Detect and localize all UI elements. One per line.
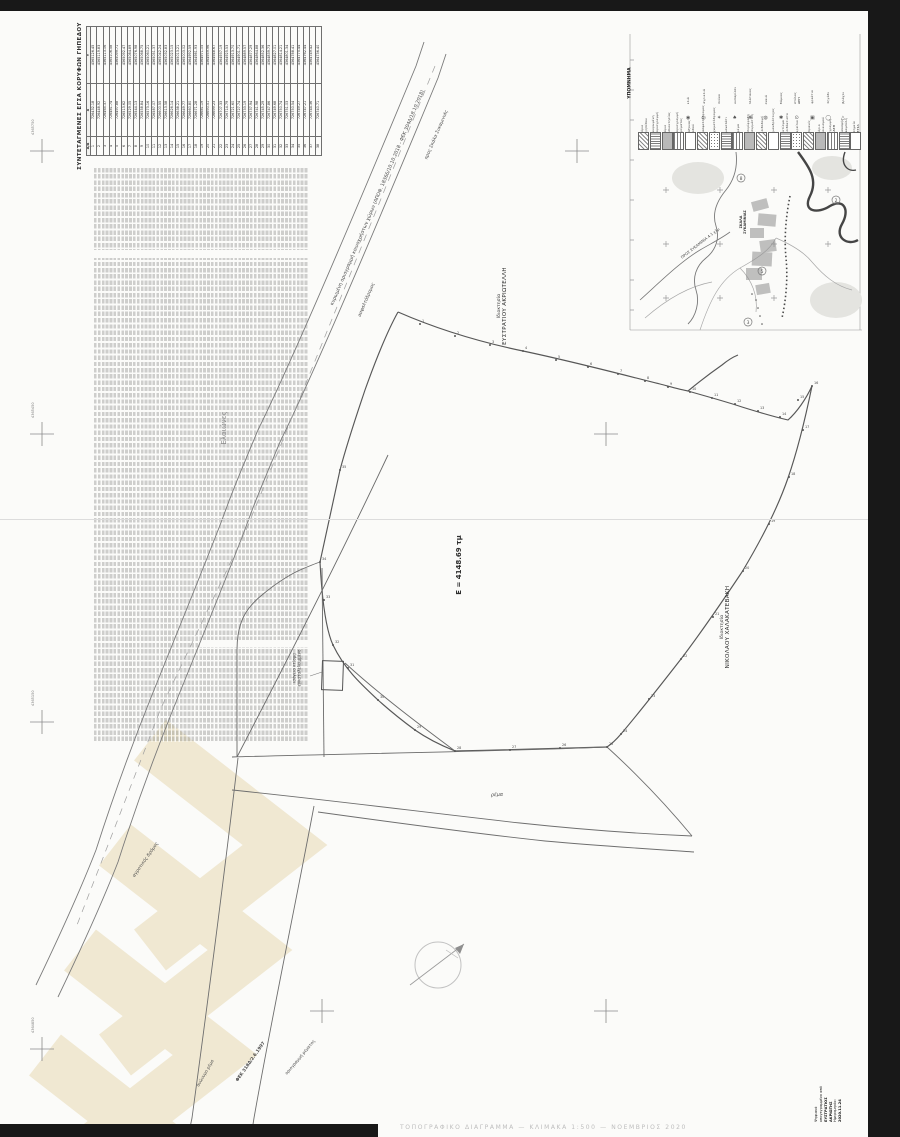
legend-swatch — [827, 132, 838, 150]
legend-box-item: γραμμή ΔΕΗ — [827, 132, 838, 150]
svg-text:11: 11 — [714, 393, 718, 397]
svg-text:8: 8 — [740, 176, 743, 182]
legend-swatch — [662, 132, 673, 150]
svg-text:22: 22 — [683, 654, 687, 658]
legend-swatch — [685, 132, 696, 150]
coord-row: 38726740.714364736.40 — [315, 27, 321, 156]
legend-box-item: ερείπιο — [791, 132, 802, 150]
legend-box-item: οριογραμμή ρέματος — [673, 132, 684, 150]
svg-text:33: 33 — [326, 595, 330, 599]
svg-text:17: 17 — [805, 425, 809, 429]
svg-text:2: 2 — [835, 198, 838, 204]
parcel-area-label: Ε = 4148.69 τμ — [455, 535, 463, 594]
svg-text:23: 23 — [651, 694, 655, 698]
legend-box-item: ισοϋψής καμπύλη — [839, 132, 850, 150]
map-legend: ΥΠΟΜΝΗΜΑ ◉ελιά◎αγριελιά✶πεύκο♠κυπαρίσσι❋… — [628, 28, 864, 152]
coordinates-table-title: ΣΥΝΤΕΤΑΓΜΕΝΕΣ ΕΓΣΑ ΚΟΡΥΦΩΝ ΓΗΠΕΔΟΥ — [77, 22, 83, 170]
svg-text:20: 20 — [745, 566, 749, 570]
legend-swatch — [768, 132, 779, 150]
legend-swatch — [697, 132, 708, 150]
abandoned-building-outline — [321, 661, 343, 691]
legend-box-item: όριο οικισμού — [815, 132, 826, 150]
svg-text:21: 21 — [715, 612, 719, 616]
legend-swatch — [815, 132, 826, 150]
legend-box-item: άξονας οδού — [685, 132, 696, 150]
svg-text:27: 27 — [512, 745, 516, 749]
legend-box-item: σημείο ΕΓΣΑ — [850, 132, 861, 150]
grid-crosses: 4365750436545043651504364850 — [30, 119, 618, 1061]
legend-box-item: μανδρότοιχος — [768, 132, 779, 150]
svg-text:4365150: 4365150 — [31, 690, 35, 706]
legend-swatch — [638, 132, 649, 150]
legend-swatch — [839, 132, 850, 150]
legend-swatch — [791, 132, 802, 150]
legend-box-item: μονοπάτι — [721, 132, 732, 150]
svg-text:31: 31 — [350, 663, 354, 667]
stream-label: ρέμα — [491, 792, 504, 799]
svg-text:5: 5 — [558, 355, 560, 359]
legend-symbol-item: ♠κυπαρίσσι — [733, 104, 737, 123]
svg-text:4365450: 4365450 — [31, 402, 35, 418]
fold-crease — [0, 519, 876, 520]
toponym-label: Ελαιώνες — [220, 411, 228, 444]
svg-text:14: 14 — [782, 412, 786, 416]
svg-text:3: 3 — [492, 340, 494, 344]
legend-box-item: περίφραξη συρμάτινη — [744, 132, 755, 150]
legend-box-item: πρανές — [803, 132, 814, 150]
legend-title: ΥΠΟΜΝΗΜΑ — [628, 67, 633, 98]
svg-text:35: 35 — [342, 465, 346, 469]
svg-text:25: 25 — [609, 742, 613, 746]
legend-symbol-item: ◍συκιά — [764, 104, 768, 123]
legend-symbol-icon: ♠ — [733, 115, 737, 121]
svg-text:26: 26 — [562, 743, 566, 747]
legend-box-item: όριο ιδιοκτησίας — [662, 132, 673, 150]
scan-border-top — [0, 0, 900, 11]
legend-box-item: κυρωμένη οριογραμμή — [650, 132, 661, 150]
svg-text:7: 7 — [620, 369, 622, 373]
svg-text:28: 28 — [457, 746, 461, 750]
legend-box-item: κτίσμα λιθόκτιστο — [780, 132, 791, 150]
svg-text:34: 34 — [322, 557, 326, 561]
owner-label-north: Ιδιοκτησία ΕΥΣΤΡΑΤΙΟΥ ΑΚΡΙΩΤΕΛΛΗ — [497, 267, 509, 345]
svg-text:5: 5 — [761, 269, 764, 275]
svg-text:32: 32 — [335, 640, 339, 644]
legend-swatch — [673, 132, 684, 150]
legend-swatch — [756, 132, 767, 150]
svg-text:10: 10 — [692, 387, 696, 391]
legend-box-item: χωματόδρομος — [709, 132, 720, 150]
svg-text:30: 30 — [380, 695, 384, 699]
legend-symbol-icon: ✶ — [717, 115, 721, 121]
svg-text:6: 6 — [590, 362, 592, 366]
svg-text:18: 18 — [791, 472, 795, 476]
legend-swatch — [744, 132, 755, 150]
svg-text:9: 9 — [670, 382, 672, 386]
legend-box-item: ρέμα — [732, 132, 743, 150]
legend-box-item: ασφαλτόδρομος — [697, 132, 708, 150]
legend-swatch — [709, 132, 720, 150]
owner-label-east: Ιδιοκτησία ΝΙΚΟΛΑΟΥ ΧΑΛΑΚΑΤΕΒΑΚΗ — [720, 586, 732, 669]
coordinates-table: Α/ΑΧΥ 1726432.184365126.452726448.924365… — [86, 36, 322, 156]
svg-text:8: 8 — [647, 376, 649, 380]
legend-symbol-icon: ◍ — [764, 115, 768, 121]
svg-text:3: 3 — [747, 320, 750, 326]
scanned-topographic-plan-page: 1234567891011121314151617181920212223242… — [0, 0, 900, 1137]
svg-text:15: 15 — [800, 395, 804, 399]
svg-text:4: 4 — [525, 346, 527, 350]
legend-box-item: όριο γηπέδου — [638, 132, 649, 150]
legend-swatch — [780, 132, 791, 150]
svg-text:24: 24 — [623, 729, 627, 733]
svg-text:4365750: 4365750 — [31, 119, 35, 135]
north-arrow — [410, 942, 464, 988]
inset-town-label: ΣΚΑΛΑ ΣΥΚΑΜΙΝΙΑΣ — [740, 210, 748, 234]
svg-text:4364850: 4364850 — [31, 1017, 35, 1033]
svg-text:1: 1 — [422, 319, 424, 323]
inset-town-blocks — [746, 198, 777, 295]
svg-text:29: 29 — [417, 725, 421, 729]
svg-text:16: 16 — [814, 381, 818, 385]
legend-swatch — [803, 132, 814, 150]
legend-swatch — [850, 132, 861, 150]
survey-drawing: 1234567891011121314151617181920212223242… — [0, 0, 900, 1137]
legend-swatch — [721, 132, 732, 150]
footer-cut-text: ΤΟΠΟΓΡΑΦΙΚΟ ΔΙΑΓΡΑΜΜΑ — ΚΛΙΜΑΚΑ 1:500 — … — [400, 1124, 830, 1131]
legend-symbol-item: ✶πεύκο — [717, 104, 721, 123]
scan-border-right — [868, 0, 900, 1137]
svg-text:13: 13 — [760, 406, 764, 410]
building-label: ισόγειο κτίσμα εγκαταλελειμμένο — [292, 650, 301, 687]
svg-text:12: 12 — [737, 399, 741, 403]
legend-swatch — [732, 132, 743, 150]
svg-text:2: 2 — [457, 331, 459, 335]
scan-border-bottom — [0, 1124, 378, 1137]
digital-signature-stamp: Ψηφιακά υπογεγραμμένο από ΕΥΣΤΡΑΤΙΟΣ ΑΚΡ… — [814, 1076, 860, 1122]
parcel-vertex-marks: 1234567891011121314151617181920212223242… — [319, 319, 818, 752]
legend-swatch — [650, 132, 661, 150]
legend-box-item: λιθοδομή — [756, 132, 767, 150]
